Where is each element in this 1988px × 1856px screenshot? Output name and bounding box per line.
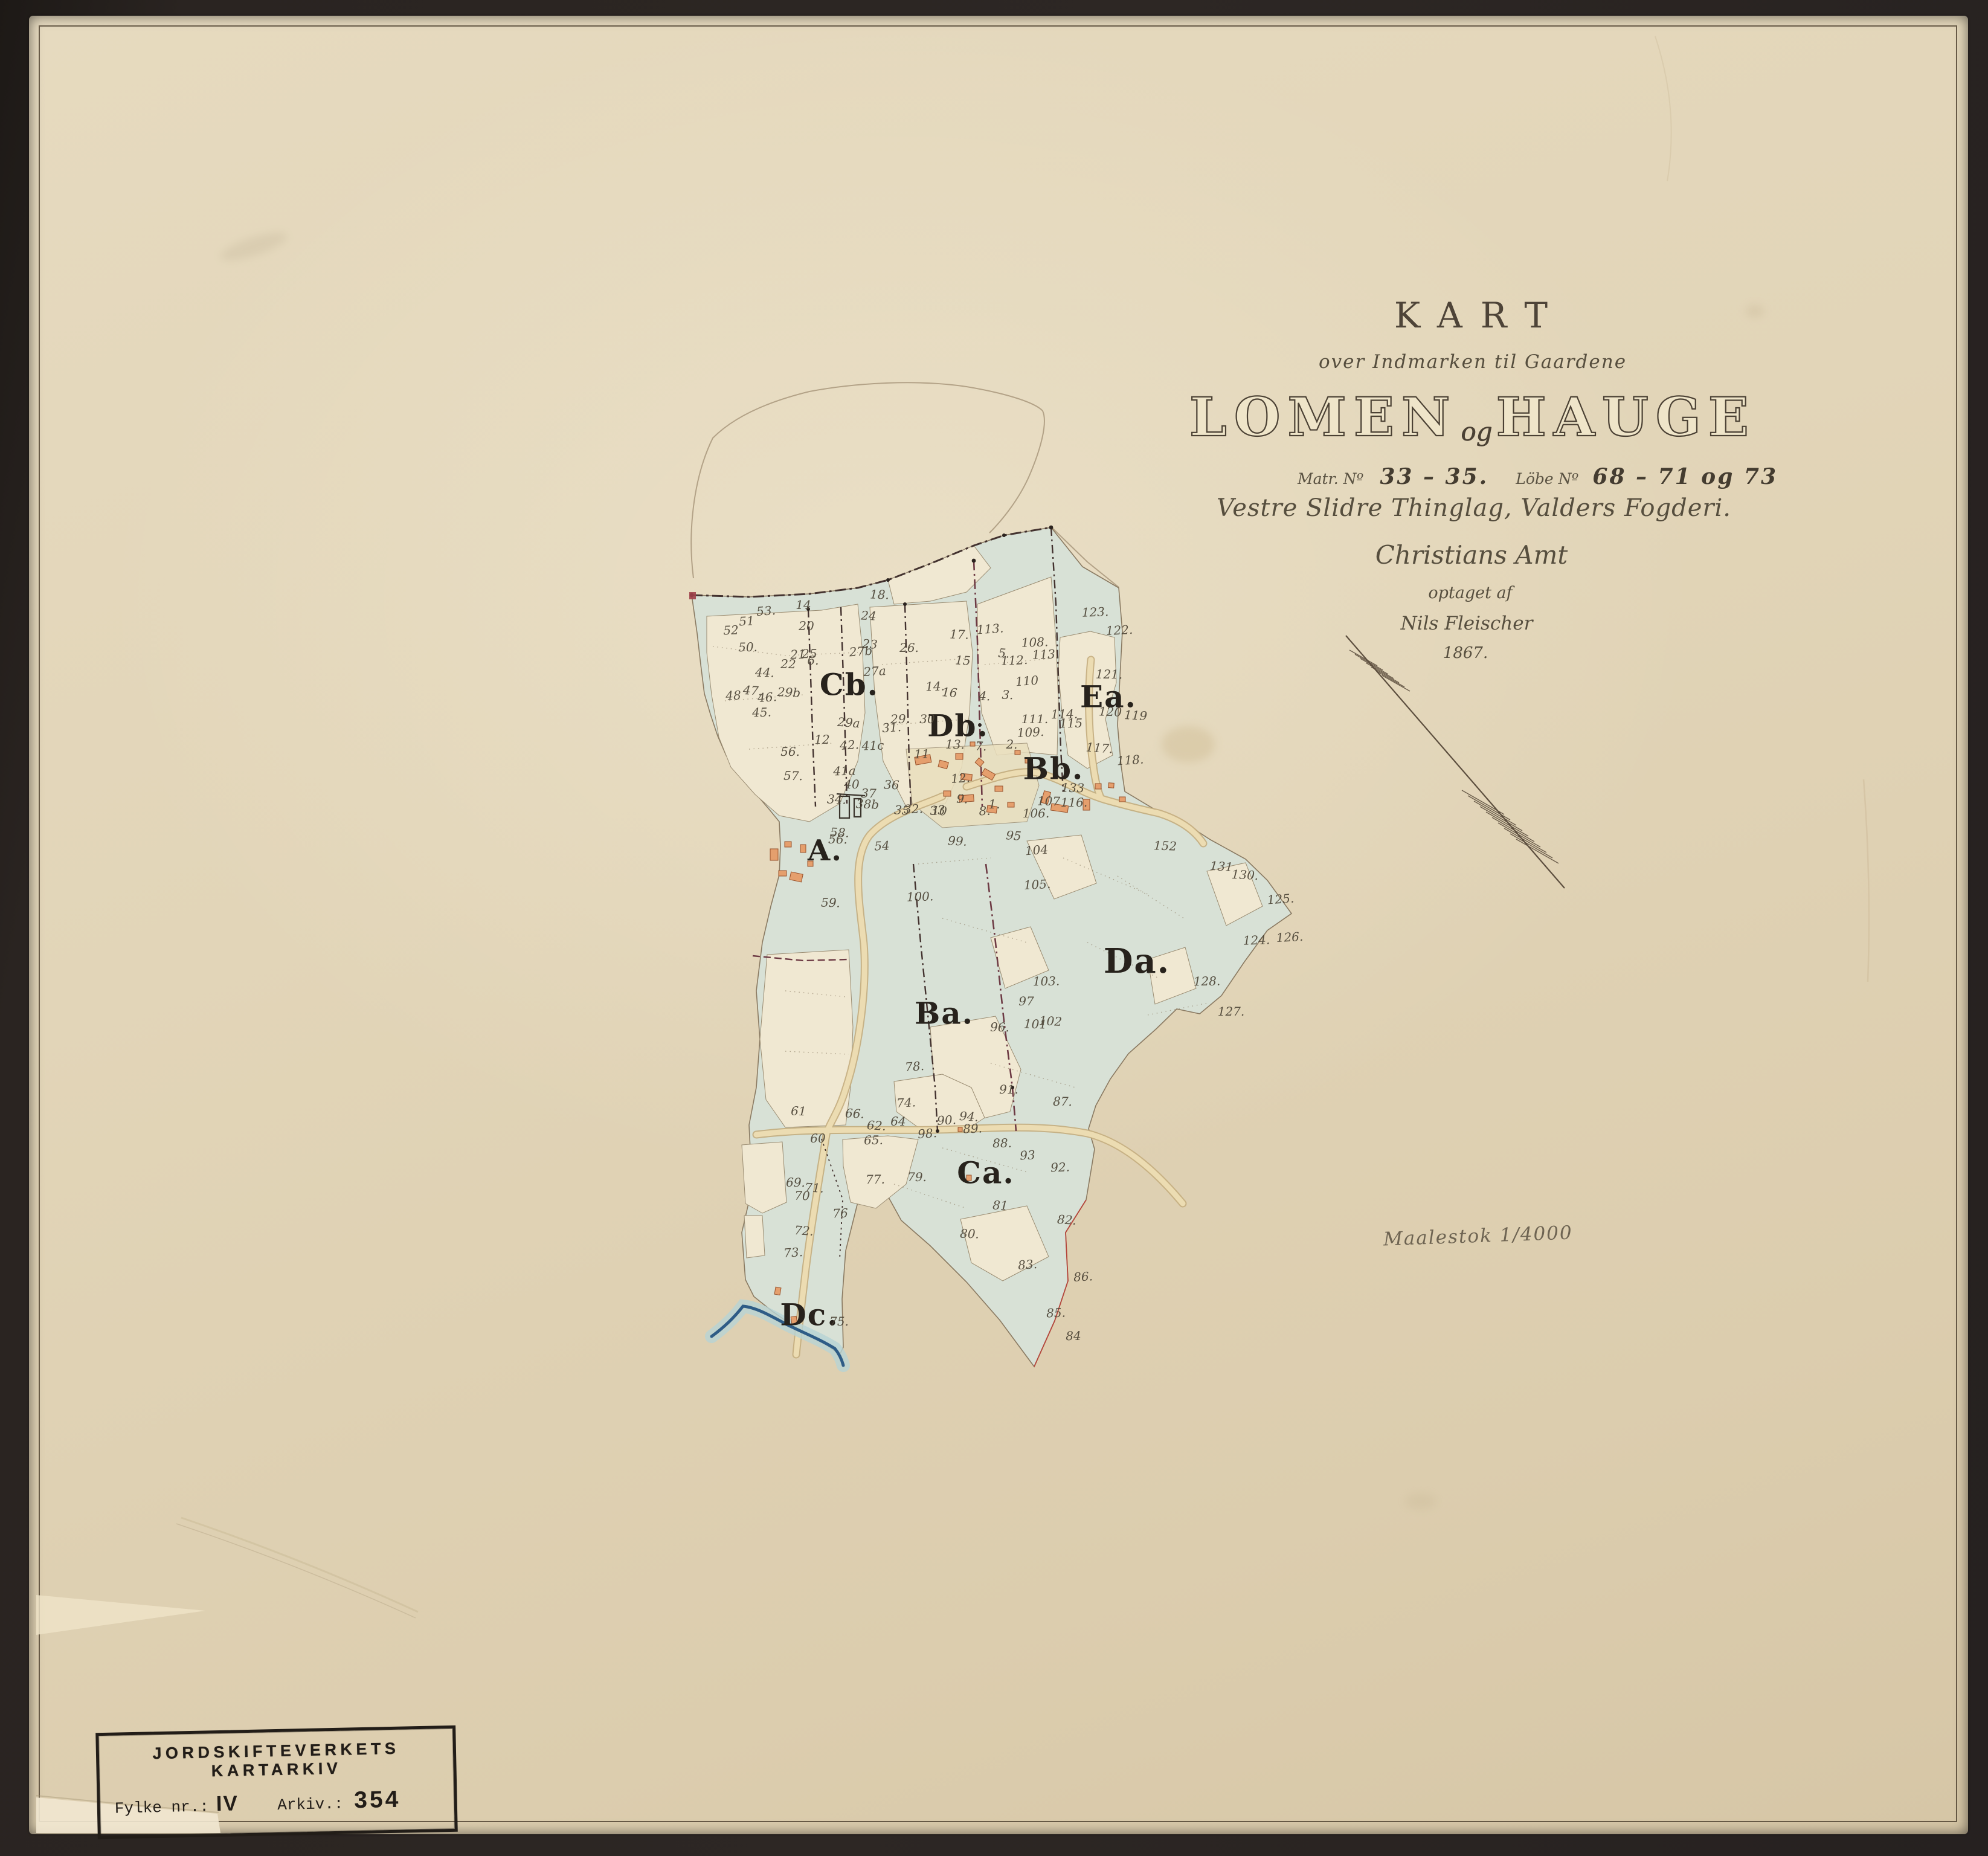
parcel-number: 44. — [755, 665, 775, 680]
parcel-number: 48 — [725, 688, 742, 703]
parcel-number: 88. — [992, 1136, 1012, 1151]
parcel-number: 61 — [791, 1104, 806, 1119]
parcel-number: 78. — [904, 1058, 924, 1074]
parcel-number: 87. — [1053, 1094, 1072, 1109]
district-line: Vestre Slidre Thinglag, Valders Fogderi. — [1217, 494, 1731, 522]
parcel-number: 26. — [899, 640, 919, 655]
parcel-number: 34. — [827, 791, 847, 807]
parcel-number: 116. — [1061, 795, 1088, 810]
parcel-number: 120 — [1098, 704, 1122, 719]
parcel-number: 92. — [1050, 1159, 1070, 1174]
parcel-number: 152 — [1153, 838, 1177, 853]
parcel-number: 41a — [833, 764, 856, 779]
stamp-arkiv-label: Arkiv.: — [277, 1795, 344, 1814]
parcel-number: 56. — [828, 832, 848, 847]
parcel-number: 54 — [874, 838, 890, 853]
parcel-number: 52 — [723, 623, 739, 638]
parcel-number: 15 — [955, 652, 971, 668]
stamp-fylke-value: IV — [216, 1791, 239, 1816]
parcel-number: 81 — [992, 1197, 1009, 1213]
parcel-number: 104 — [1025, 842, 1049, 859]
parcel-number: 22 — [780, 657, 796, 671]
parcel-number: 62. — [866, 1118, 886, 1133]
parcel-number: 112. — [1000, 652, 1028, 668]
matr-label: Matr. Nº — [1298, 470, 1363, 488]
parcel-number: 76 — [832, 1206, 848, 1221]
parcel-number: 118. — [1116, 752, 1144, 768]
parcel-number: 117. — [1086, 739, 1113, 756]
parcel-number: 38b — [855, 796, 879, 812]
parcel-number: 107 — [1037, 794, 1061, 809]
parcel-number: 2. — [1006, 737, 1018, 752]
parcel-number: 20 — [799, 619, 814, 633]
parcel-number: 133 — [1061, 781, 1085, 796]
parcel-number: 131 — [1209, 859, 1234, 875]
map-title-kart: KART — [1394, 295, 1566, 336]
parcel-number: 126. — [1276, 929, 1304, 945]
matrikkel-line: Matr. Nº 33 – 35. Löbe Nº 68 – 71 og 73 — [1298, 464, 1778, 489]
parcel-number: 7. — [975, 739, 987, 754]
parcel-number: 16 — [941, 685, 957, 700]
parcel-number: 46. — [757, 689, 777, 705]
section-label: Ba. — [915, 996, 974, 1031]
parcel-number: 65. — [864, 1133, 883, 1148]
parcel-number: 14 — [796, 598, 811, 612]
parcel-number: 109. — [1017, 724, 1044, 740]
parcel-number: 100. — [906, 889, 933, 904]
parcel-number: 74. — [896, 1095, 916, 1110]
parcel-number: 18. — [870, 587, 890, 602]
parcel-number: 42. — [839, 737, 859, 753]
parcel-number: 113. — [976, 620, 1004, 637]
parcel-number: 9. — [956, 791, 969, 806]
lobe-label: Löbe Nº — [1516, 470, 1578, 488]
archive-stamp: JORDSKIFTEVERKETS KARTARKIV Fylke nr.: I… — [95, 1725, 458, 1839]
section-label: Da. — [1104, 941, 1170, 981]
parcel-number: 128. — [1194, 974, 1221, 989]
parcel-number: 40 — [844, 777, 859, 791]
parcel-number: 89. — [963, 1121, 983, 1136]
title-lomen: LOMEN — [1189, 385, 1457, 448]
parcel-number: 29a — [837, 715, 861, 731]
parcel-number: 17. — [950, 627, 970, 642]
parcel-number: 90. — [936, 1112, 956, 1128]
parcel-number: 102 — [1038, 1013, 1062, 1029]
parcel-number: 12 — [814, 732, 830, 747]
cadastral-map-drawing — [29, 16, 1968, 1834]
parcel-number: 69. — [786, 1175, 805, 1190]
parcel-number: 3. — [1002, 688, 1014, 703]
matr-value: 33 – 35. — [1380, 464, 1488, 489]
parcel-number: 56. — [780, 744, 800, 759]
parcel-number: 10 — [931, 803, 948, 818]
parcel-number: 41c — [861, 738, 884, 753]
parcel-number: 64 — [890, 1114, 906, 1129]
parcel-number: 6. — [807, 653, 819, 668]
parcel-number: 72. — [794, 1223, 814, 1239]
parcel-number: 91. — [999, 1082, 1018, 1097]
lobe-value: 68 – 71 og 73 — [1592, 464, 1778, 489]
parcel-number: 105. — [1023, 877, 1051, 892]
parcel-number: 50. — [738, 640, 758, 655]
map-main-title: LOMENogHAUGE — [1189, 385, 1756, 448]
parcel-number: 122. — [1105, 622, 1133, 638]
parcel-number: 119 — [1124, 707, 1147, 723]
parcel-number: 29. — [890, 712, 910, 727]
amt-line: Christians Amt — [1375, 540, 1568, 570]
parcel-number: 13. — [945, 737, 965, 752]
parcel-number: 4. — [979, 689, 991, 704]
parcel-number: 79. — [907, 1170, 927, 1184]
parcel-number: 60 — [810, 1131, 825, 1145]
parcel-number: 24 — [861, 608, 877, 623]
optaget-line: optaget af — [1428, 584, 1512, 602]
parcel-number: 30 — [919, 712, 934, 726]
title-og: og — [1461, 417, 1492, 446]
parcel-number: 124. — [1243, 932, 1270, 948]
parcel-number: 77. — [866, 1172, 885, 1187]
parcel-number: 66. — [844, 1106, 864, 1121]
parcel-number: 12. — [950, 770, 970, 786]
parcel-number: 121. — [1096, 667, 1123, 682]
parcel-number: 75. — [829, 1314, 849, 1329]
stamp-arkiv-value: 354 — [354, 1787, 401, 1814]
map-subtitle: over Indmarken til Gaardene — [1319, 351, 1627, 373]
parcel-number: 82. — [1057, 1212, 1076, 1228]
parcel-number: 93 — [1020, 1147, 1036, 1162]
meridian-line — [1346, 636, 1565, 888]
parcel-number: 125. — [1267, 891, 1295, 907]
parcel-number: 53. — [756, 603, 776, 619]
parcel-number: 123. — [1081, 604, 1108, 620]
parcel-number: 103. — [1033, 974, 1060, 989]
stamp-spacer — [239, 1809, 277, 1810]
parcel-number: 27b — [849, 643, 873, 660]
parcel-number: 130. — [1231, 867, 1259, 883]
parcel-number: 99. — [947, 833, 967, 849]
parcel-number: 86. — [1073, 1269, 1093, 1284]
parcel-number: 114. — [1051, 707, 1078, 722]
map-sheet: KART over Indmarken til Gaardene LOMENog… — [29, 16, 1968, 1834]
parcel-number: 73. — [783, 1245, 803, 1260]
parcel-number: 96. — [990, 1020, 1009, 1035]
survey-year: 1867. — [1443, 644, 1488, 662]
parcel-number: 127. — [1218, 1004, 1245, 1019]
section-label: Ca. — [957, 1155, 1015, 1191]
parcel-number: 97 — [1018, 994, 1034, 1008]
parcel-number: 71. — [804, 1180, 824, 1196]
surveyor-name: Nils Fleischer — [1401, 613, 1533, 634]
parcel-number: 98. — [917, 1126, 937, 1141]
parcel-number: 57. — [783, 768, 803, 784]
parcel-number: 51 — [739, 613, 755, 628]
stamp-fylke-label: Fylke nr.: — [115, 1797, 210, 1817]
parcel-number: 1. — [988, 797, 1000, 811]
parcel-number: 85. — [1046, 1305, 1066, 1320]
parcel-number: 11 — [914, 747, 930, 761]
parcel-number: 29b — [777, 685, 800, 700]
parcel-number: 83. — [1017, 1257, 1037, 1272]
parcel-number: 32. — [904, 801, 924, 816]
parcel-number: 27a — [863, 663, 887, 679]
parcel-number: 59. — [821, 895, 841, 910]
parcel-number: 113. — [1032, 646, 1059, 662]
parcel-number: 80. — [960, 1226, 980, 1241]
parcel-number: 95 — [1005, 828, 1021, 843]
parcel-number: 36 — [884, 778, 899, 793]
parcel-number: 111. — [1021, 712, 1049, 726]
title-hauge: HAUGE — [1496, 385, 1756, 448]
parcel-number: 110 — [1015, 673, 1039, 689]
parcel-number: 84 — [1066, 1329, 1081, 1343]
stamp-title: JORDSKIFTEVERKETS KARTARKIV — [99, 1738, 454, 1783]
parcel-number: 45. — [752, 704, 772, 720]
